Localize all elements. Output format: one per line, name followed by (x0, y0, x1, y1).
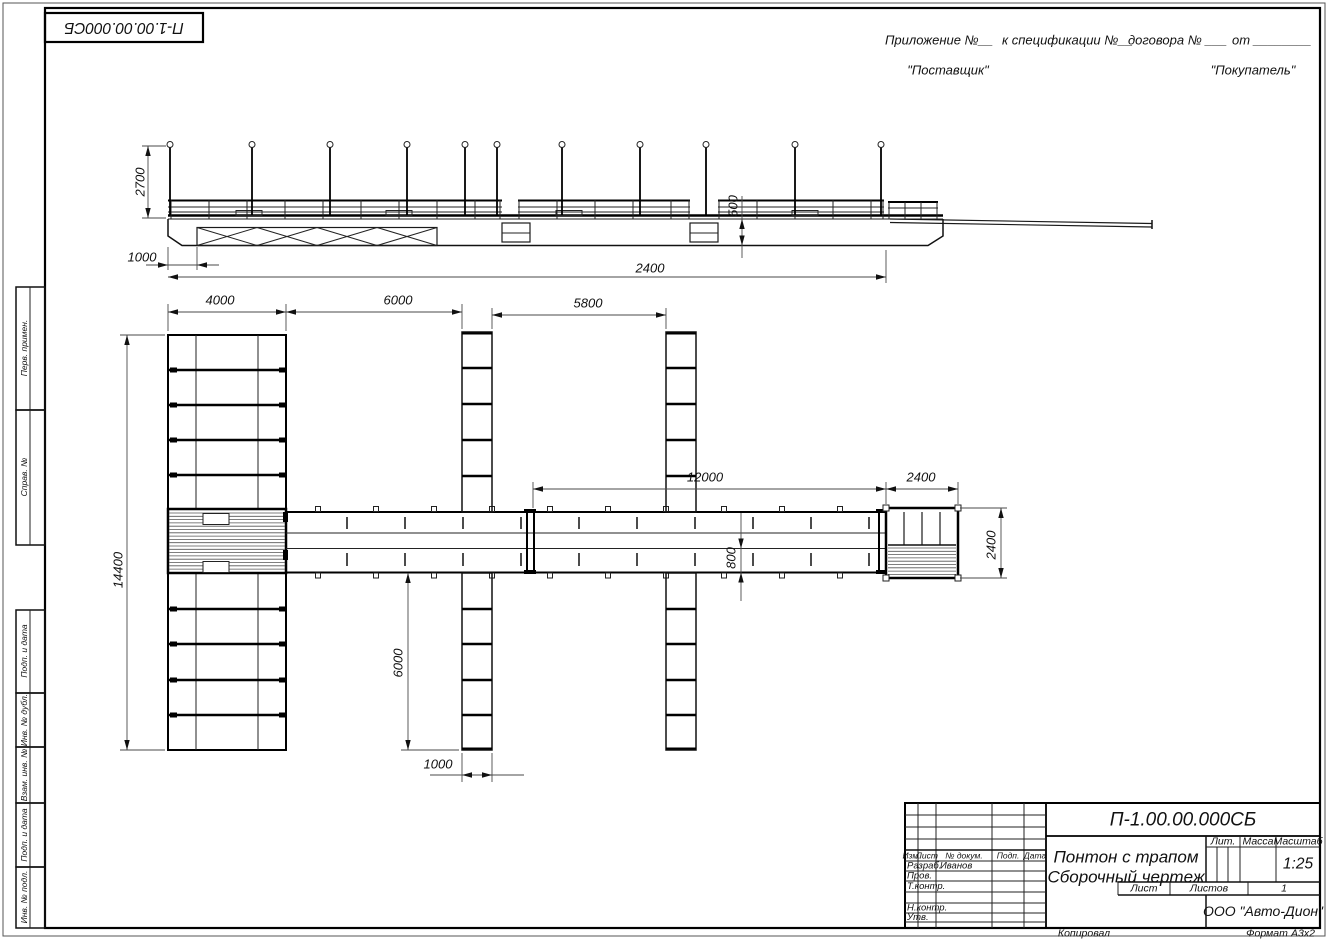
doc-number-stamp-box: П-1.00.00.000СБ (45, 13, 203, 42)
dim-platform-width: 2400 (906, 470, 937, 485)
dim-side-freeboard: 500 (726, 194, 741, 216)
format-value: А3х2 (1290, 928, 1315, 939)
plan-view (168, 332, 961, 750)
title-block: П-1.00.00.000СБ Изм. Лист № докум. Подп.… (902, 803, 1324, 928)
margin-label-invdubl: Инв. № дубл. (19, 694, 29, 746)
company-name: ООО "Авто-Дион" (1203, 903, 1324, 919)
walkway (283, 507, 886, 579)
margin-label-vzam: Взам. инв. № (19, 749, 29, 802)
lit-label: Лит. (1210, 836, 1236, 848)
gangway-side (890, 219, 1152, 229)
left-margin-boxes: Перв. примен. Справ. № Подп. и дата Инв.… (16, 287, 45, 928)
mooring-poles (167, 142, 884, 216)
appendix-line-p4: от ________ (1232, 33, 1312, 48)
col-docnum: № докум. (945, 851, 982, 861)
appendix-header: Приложение №__ к спецификации №__ догово… (885, 33, 1312, 78)
scale-label: Масштаб (1273, 836, 1323, 848)
sheets-value: 1 (1281, 883, 1287, 895)
appendix-line-p3: договора № ___ (1128, 33, 1227, 48)
appendix-line-p1: Приложение №__ (885, 33, 993, 48)
mass-label: Масса (1242, 836, 1273, 848)
doc-number: П-1.00.00.000СБ (1110, 810, 1257, 831)
dim-length: 14400 (111, 551, 126, 588)
margin-label-podp2: Подп. и дата (19, 808, 29, 861)
margin-label-sprav: Справ. № (19, 458, 29, 497)
row-prov: Пров. (907, 871, 932, 882)
dim-pier-length: 6000 (391, 648, 406, 678)
dim-pontoon-width: 4000 (206, 293, 236, 308)
copied-label: Копировал (1058, 928, 1110, 939)
dim-side-offset: 1000 (128, 250, 158, 265)
sheets-label: Листов (1189, 883, 1229, 895)
margin-label-podp1: Подп. и дата (19, 624, 29, 677)
margin-label-perv: Перв. примен. (19, 320, 29, 377)
scale-value: 1:25 (1283, 856, 1314, 873)
drawing-title-line2: Сборочный чертеж (1047, 868, 1205, 887)
bottom-margin: Копировал Формат А3х2 (1058, 928, 1315, 939)
dim-gap1: 6000 (384, 293, 414, 308)
col-data: Дата (1023, 851, 1047, 861)
margin-label-invpodl: Инв. № подл. (19, 871, 29, 924)
drawing-canvas: П-1.00.00.000СБ Перв. примен. Справ. № П… (0, 0, 1328, 939)
format-label: Формат (1246, 928, 1288, 939)
dim-side-height: 2700 (133, 167, 148, 198)
pontoon-deck-hatch (168, 509, 286, 573)
dim-pier-width: 1000 (424, 757, 454, 772)
row-tkontr: Т.контр. (907, 881, 945, 892)
landing-platform (883, 505, 961, 581)
scissor-lift (197, 228, 437, 246)
col-list: Лист (915, 851, 938, 861)
appendix-line-p2: к спецификации №__ (1002, 33, 1133, 48)
dim-platform-depth: 2400 (984, 530, 999, 561)
finger-piers (462, 332, 696, 750)
razrab-name: Иванов (940, 861, 972, 872)
dim-lane: 800 (724, 546, 739, 568)
supplier-label: "Поставщик" (907, 63, 990, 78)
drawing-title-line1: Понтон с трапом (1053, 848, 1198, 867)
doc-number-stamp: П-1.00.00.000СБ (64, 19, 184, 36)
dim-side-overall: 2400 (635, 261, 666, 276)
col-podp: Подп. (997, 851, 1020, 861)
dim-walkway: 12000 (687, 470, 724, 485)
row-utv: Утв. (906, 912, 929, 923)
sheet-label: Лист (1129, 883, 1157, 895)
dim-gap2: 5800 (574, 296, 604, 311)
side-view (167, 142, 1152, 246)
sheet-frame (3, 3, 1325, 936)
buyer-label: "Покупатель" (1211, 63, 1297, 78)
drawing-sheet: П-1.00.00.000СБ Перв. примен. Справ. № П… (0, 0, 1328, 939)
